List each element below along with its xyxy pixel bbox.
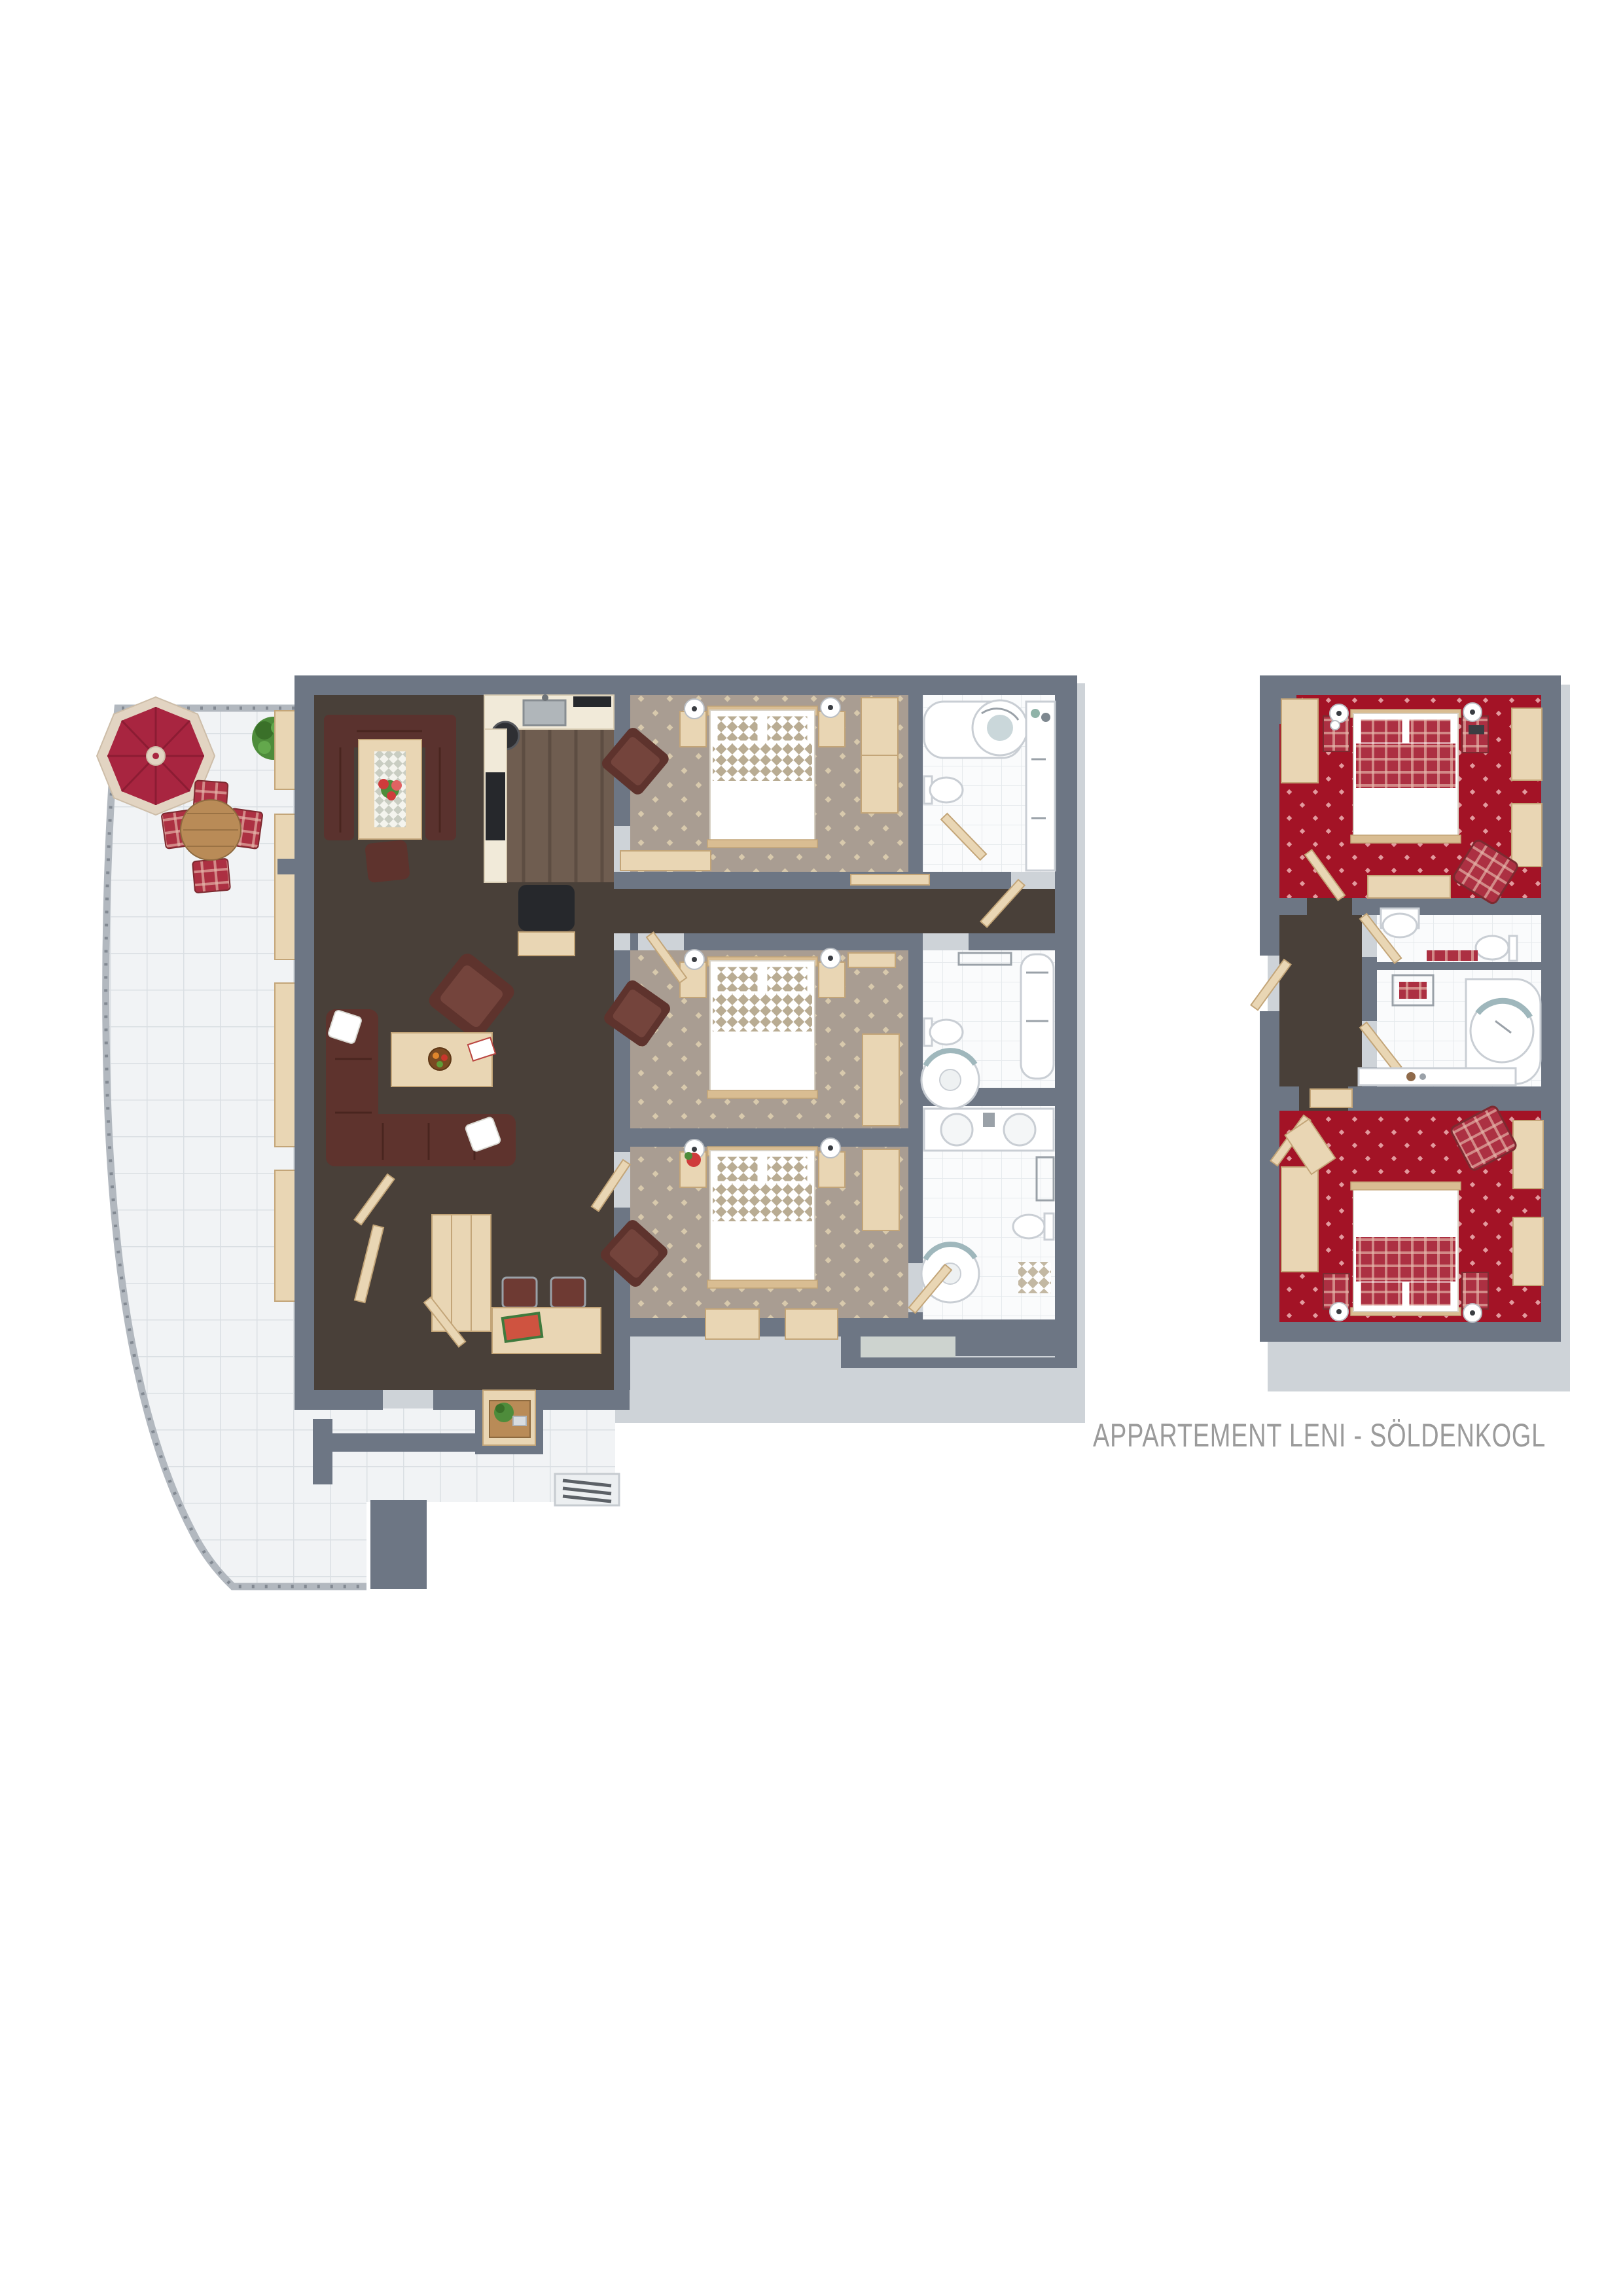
cup: [1330, 721, 1340, 730]
toilet: [924, 776, 963, 804]
terrace-chair: [192, 859, 230, 893]
dining-chair: [365, 840, 410, 883]
faucet: [542, 694, 548, 701]
kitchen-sink: [524, 700, 565, 725]
wall-cabinet: [1513, 1121, 1543, 1189]
wardrobe: [863, 1034, 899, 1126]
toiletries: [983, 1113, 995, 1127]
coffee-table: [391, 1033, 495, 1086]
bath-mat: [1018, 1262, 1051, 1293]
wardrobe: [1281, 1167, 1318, 1272]
wooden-bench: [1310, 1089, 1352, 1107]
wardrobe: [863, 1149, 899, 1230]
light-well-floor: [861, 1336, 955, 1357]
parapet-wall: [370, 1500, 427, 1589]
wardrobe: [1281, 699, 1318, 783]
vanity-counter: [1359, 1068, 1516, 1085]
wall-sideboard: [848, 953, 895, 967]
wall-shelf: [851, 874, 929, 885]
wall-cabinet: [1512, 804, 1542, 867]
niche-table: [490, 1401, 530, 1437]
magazines: [503, 1313, 542, 1341]
window-bench: [705, 1309, 759, 1339]
sideboard: [620, 851, 711, 870]
window-sill: [277, 859, 297, 874]
plan-title: APPARTEMENT LENI - SÖLDENKOGL: [1093, 1417, 1546, 1454]
double-sink-vanity: [924, 1109, 1054, 1151]
floor-plan-page: APPARTEMENT LENI - SÖLDENKOGL: [0, 0, 1623, 2296]
red-bath-mat: [1427, 950, 1478, 961]
wall-cabinet: [1513, 1217, 1543, 1285]
toilet: [1476, 936, 1517, 961]
parapet-wall: [313, 1433, 476, 1452]
window-bench: [785, 1309, 838, 1339]
hallway-floor: [614, 889, 1055, 933]
corner-shower: [921, 1050, 979, 1109]
bathtub: [1021, 954, 1054, 1079]
low-cabinet: [518, 932, 575, 956]
washbasin: [1381, 908, 1419, 937]
radio: [1469, 725, 1484, 734]
bathroom-cabinets: [1026, 702, 1055, 870]
cooktop: [573, 696, 611, 707]
desk-chair: [551, 1278, 585, 1308]
stool: [518, 885, 575, 931]
toilet: [1013, 1213, 1054, 1240]
desk-chair: [503, 1278, 537, 1308]
toilet: [924, 1018, 963, 1046]
built-in-appliance: [486, 772, 505, 840]
corridor-floor: [1279, 898, 1362, 1111]
toiletries: [1406, 1072, 1416, 1081]
floor-plan-canvas: APPARTEMENT LENI - SÖLDENKOGL: [0, 0, 1623, 2296]
wall-cabinet: [1512, 708, 1542, 780]
desk: [1368, 876, 1450, 898]
